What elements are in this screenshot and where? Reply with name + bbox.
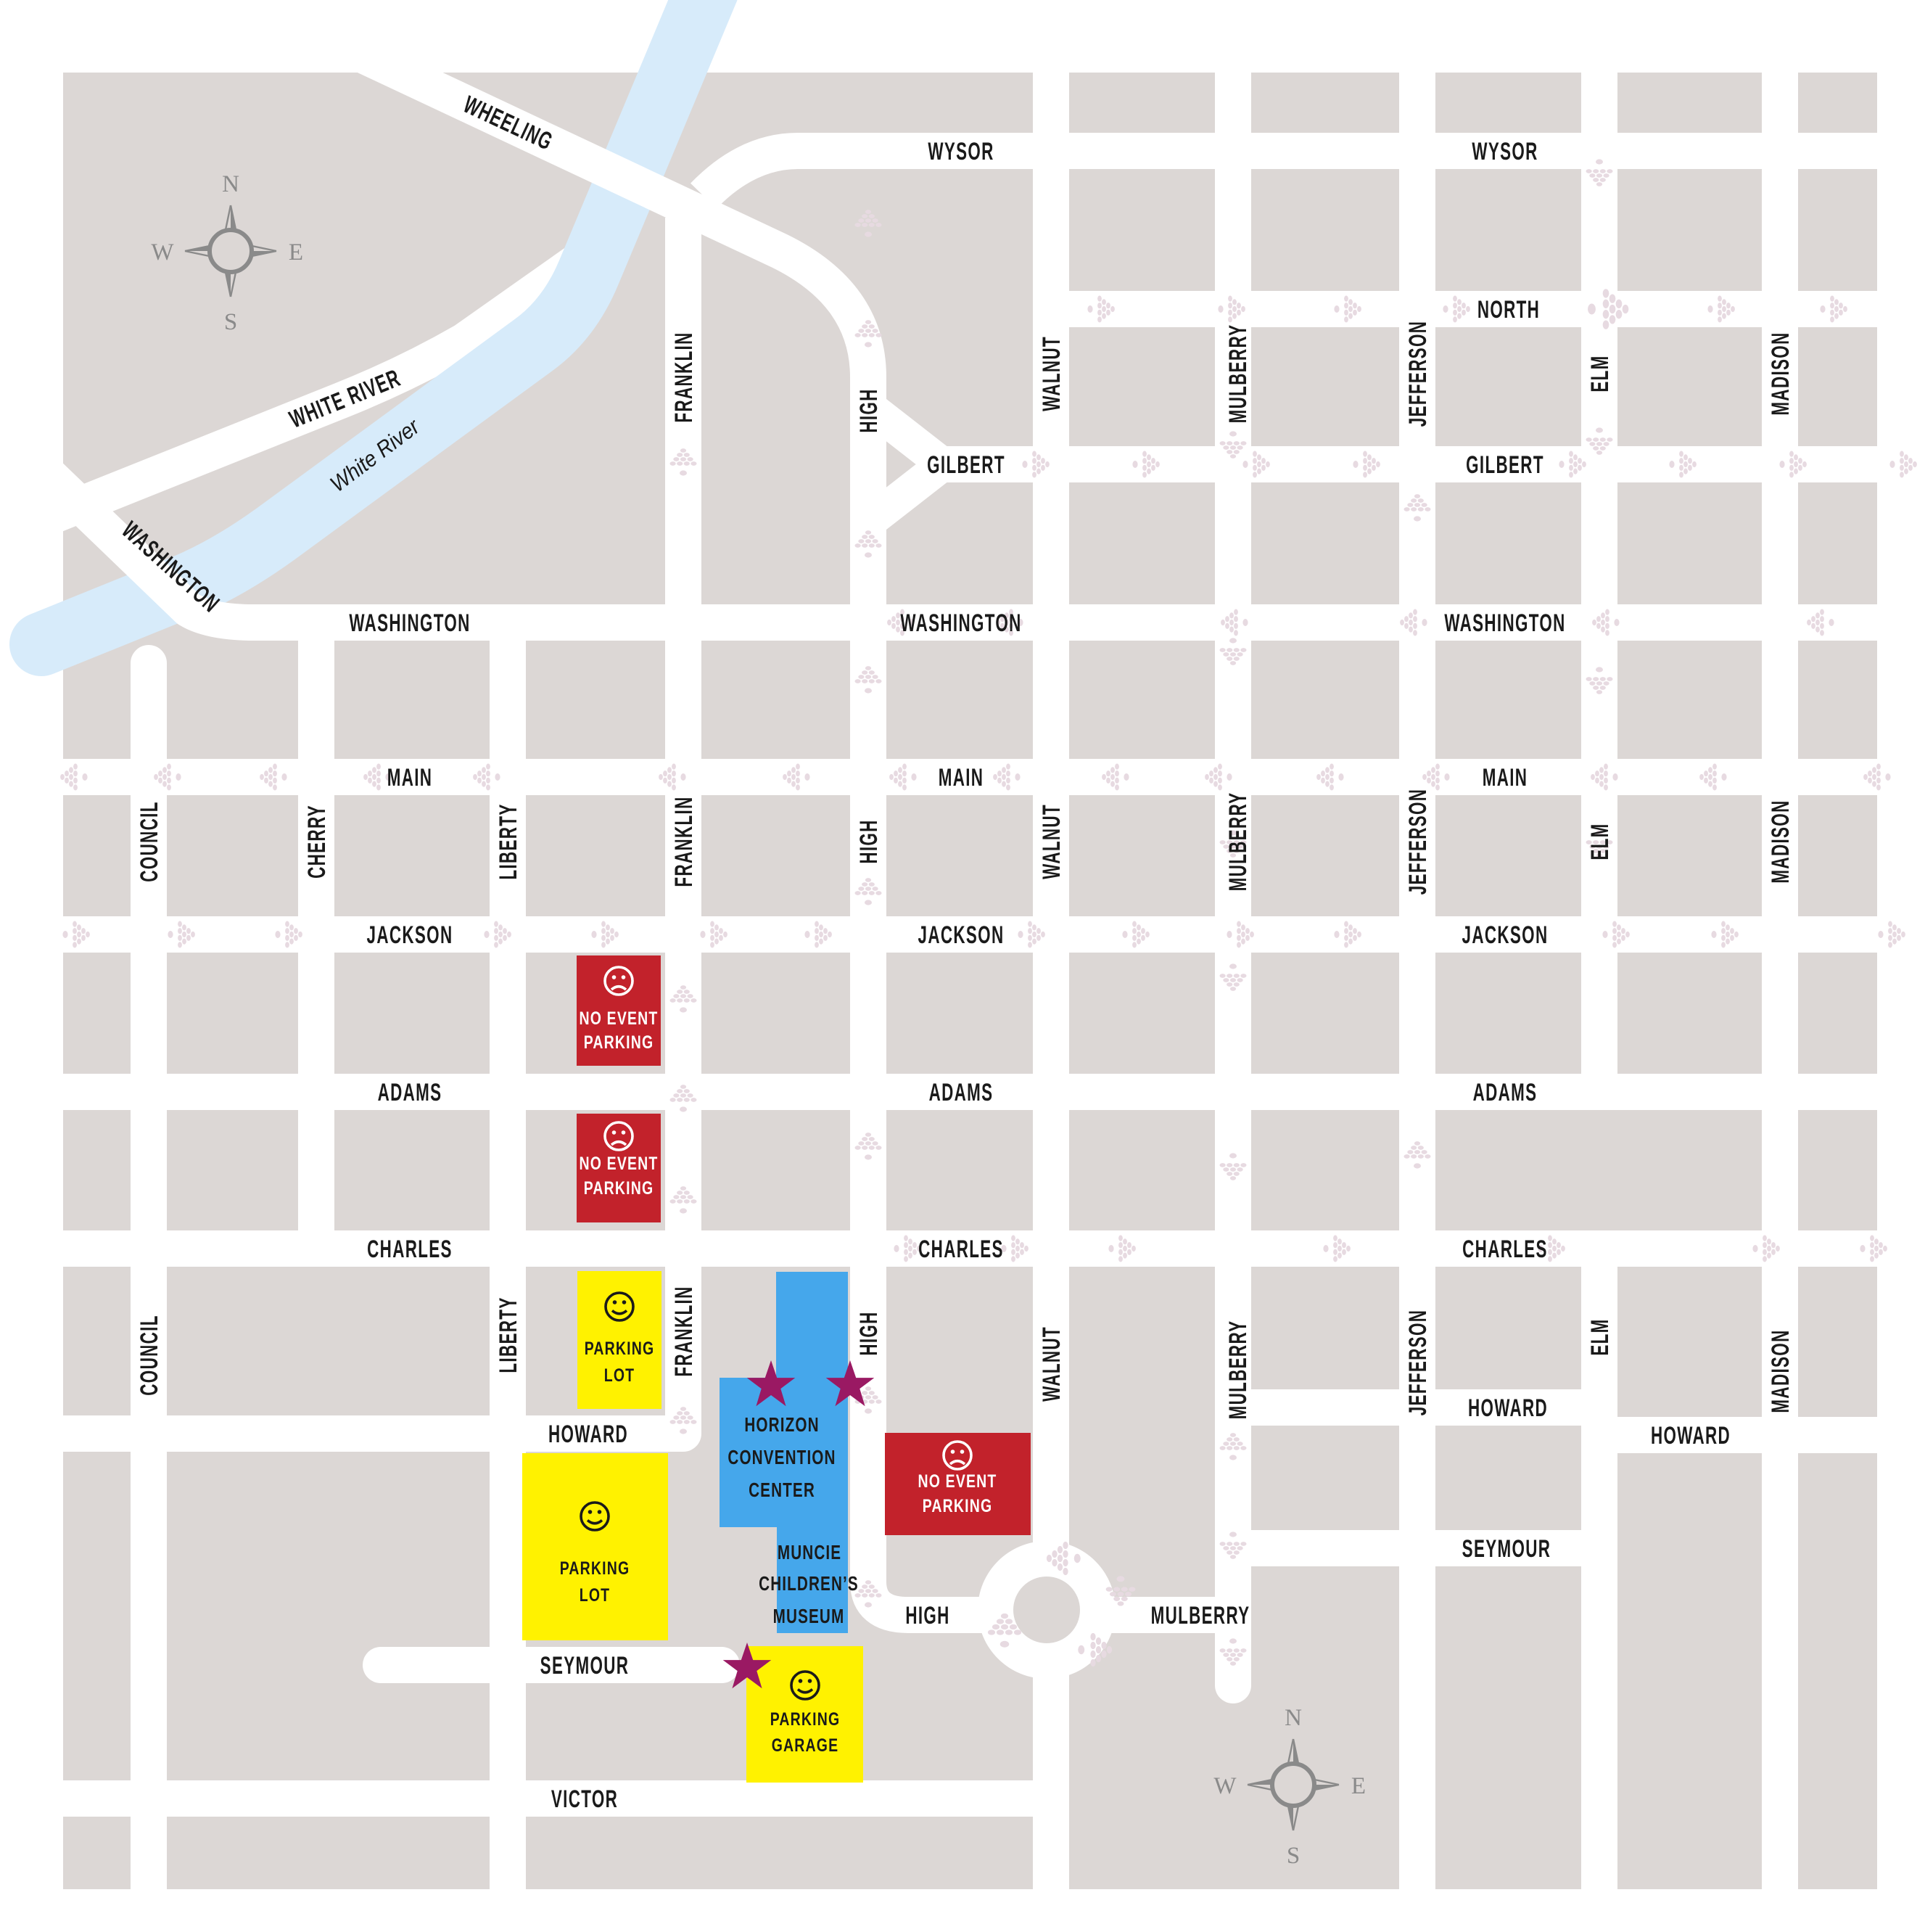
svg-text:PARKING: PARKING — [770, 1709, 841, 1730]
svg-text:NO EVENT: NO EVENT — [580, 1008, 659, 1029]
svg-text:MAIN: MAIN — [387, 764, 433, 792]
svg-text:GILBERT: GILBERT — [927, 451, 1005, 479]
svg-text:CHILDREN’S: CHILDREN’S — [759, 1573, 859, 1595]
svg-text:FRANKLIN: FRANKLIN — [670, 332, 698, 422]
svg-text:WASHINGTON: WASHINGTON — [1444, 609, 1565, 637]
svg-text:W: W — [151, 239, 174, 266]
svg-text:JEFFERSON: JEFFERSON — [1404, 789, 1432, 895]
svg-text:HOWARD: HOWARD — [1468, 1394, 1548, 1422]
svg-text:FRANKLIN: FRANKLIN — [670, 1286, 698, 1376]
svg-text:HIGH: HIGH — [855, 388, 883, 432]
svg-text:PARKING: PARKING — [560, 1558, 630, 1579]
svg-text:ADAMS: ADAMS — [929, 1079, 994, 1106]
svg-text:MADISON: MADISON — [1767, 1329, 1794, 1413]
svg-text:COUNCIL: COUNCIL — [136, 801, 163, 881]
svg-text:ADAMS: ADAMS — [378, 1079, 442, 1106]
svg-text:ADAMS: ADAMS — [1473, 1079, 1538, 1106]
svg-text:MADISON: MADISON — [1767, 799, 1794, 883]
svg-text:LOT: LOT — [580, 1585, 610, 1606]
svg-text:CHARLES: CHARLES — [367, 1236, 453, 1263]
svg-text:GILBERT: GILBERT — [1466, 451, 1544, 479]
svg-text:JACKSON: JACKSON — [1462, 921, 1549, 949]
svg-text:FRANKLIN: FRANKLIN — [670, 796, 698, 887]
svg-text:ELM: ELM — [1586, 355, 1614, 392]
svg-text:WALNUT: WALNUT — [1038, 1326, 1065, 1402]
svg-text:HOWARD: HOWARD — [1651, 1422, 1731, 1450]
svg-text:ELM: ELM — [1586, 823, 1614, 860]
svg-text:E: E — [289, 239, 303, 266]
svg-text:HOWARD: HOWARD — [548, 1421, 628, 1448]
svg-text:SEYMOUR: SEYMOUR — [1462, 1535, 1551, 1563]
svg-text:NO EVENT: NO EVENT — [918, 1471, 997, 1492]
svg-text:JACKSON: JACKSON — [367, 921, 453, 949]
svg-text:SEYMOUR: SEYMOUR — [540, 1652, 630, 1680]
svg-text:MAIN: MAIN — [939, 764, 984, 792]
svg-text:MULBERRY: MULBERRY — [1224, 792, 1252, 892]
svg-text:PARKING: PARKING — [584, 1178, 654, 1199]
svg-text:JEFFERSON: JEFFERSON — [1404, 321, 1432, 427]
svg-text:HIGH: HIGH — [905, 1602, 949, 1629]
svg-text:MUSEUM: MUSEUM — [773, 1606, 845, 1628]
svg-text:LIBERTY: LIBERTY — [495, 1296, 522, 1373]
svg-text:S: S — [224, 309, 237, 335]
svg-text:WALNUT: WALNUT — [1038, 336, 1065, 411]
svg-text:CHERRY: CHERRY — [303, 805, 331, 879]
svg-text:NORTH: NORTH — [1477, 296, 1540, 324]
svg-text:CHARLES: CHARLES — [1462, 1236, 1548, 1263]
svg-text:N: N — [1285, 1705, 1302, 1731]
svg-text:CENTER: CENTER — [749, 1479, 815, 1502]
svg-text:LIBERTY: LIBERTY — [495, 803, 522, 879]
svg-text:CHARLES: CHARLES — [918, 1236, 1004, 1263]
svg-text:MADISON: MADISON — [1767, 332, 1794, 415]
svg-text:NO EVENT: NO EVENT — [580, 1154, 659, 1174]
svg-text:N: N — [222, 171, 239, 197]
svg-text:WYSOR: WYSOR — [1472, 138, 1538, 165]
svg-text:CONVENTION: CONVENTION — [727, 1447, 836, 1469]
svg-text:PARKING: PARKING — [584, 1032, 654, 1053]
svg-text:COUNCIL: COUNCIL — [136, 1315, 163, 1395]
svg-text:WYSOR: WYSOR — [928, 138, 994, 165]
svg-text:VICTOR: VICTOR — [551, 1785, 618, 1813]
svg-text:S: S — [1287, 1843, 1300, 1869]
svg-text:PARKING: PARKING — [585, 1339, 655, 1359]
svg-text:PARKING: PARKING — [923, 1496, 993, 1516]
svg-text:MAIN: MAIN — [1483, 764, 1528, 792]
svg-text:MULBERRY: MULBERRY — [1151, 1602, 1250, 1629]
svg-text:ELM: ELM — [1586, 1318, 1614, 1355]
svg-text:MULBERRY: MULBERRY — [1224, 1320, 1252, 1420]
svg-text:WALNUT: WALNUT — [1038, 804, 1065, 879]
svg-text:E: E — [1351, 1773, 1366, 1799]
svg-text:HIGH: HIGH — [855, 819, 883, 863]
svg-text:WASHINGTON: WASHINGTON — [900, 609, 1021, 637]
svg-text:HIGH: HIGH — [855, 1311, 883, 1355]
svg-text:JACKSON: JACKSON — [918, 921, 1005, 949]
svg-text:WASHINGTON: WASHINGTON — [349, 609, 470, 637]
svg-text:W: W — [1213, 1773, 1237, 1799]
svg-text:LOT: LOT — [604, 1365, 635, 1386]
svg-text:MUNCIE: MUNCIE — [778, 1542, 841, 1564]
svg-text:MULBERRY: MULBERRY — [1224, 324, 1252, 424]
svg-text:GARAGE: GARAGE — [772, 1735, 839, 1756]
svg-text:HORIZON: HORIZON — [744, 1414, 819, 1436]
svg-text:JEFFERSON: JEFFERSON — [1404, 1310, 1432, 1416]
